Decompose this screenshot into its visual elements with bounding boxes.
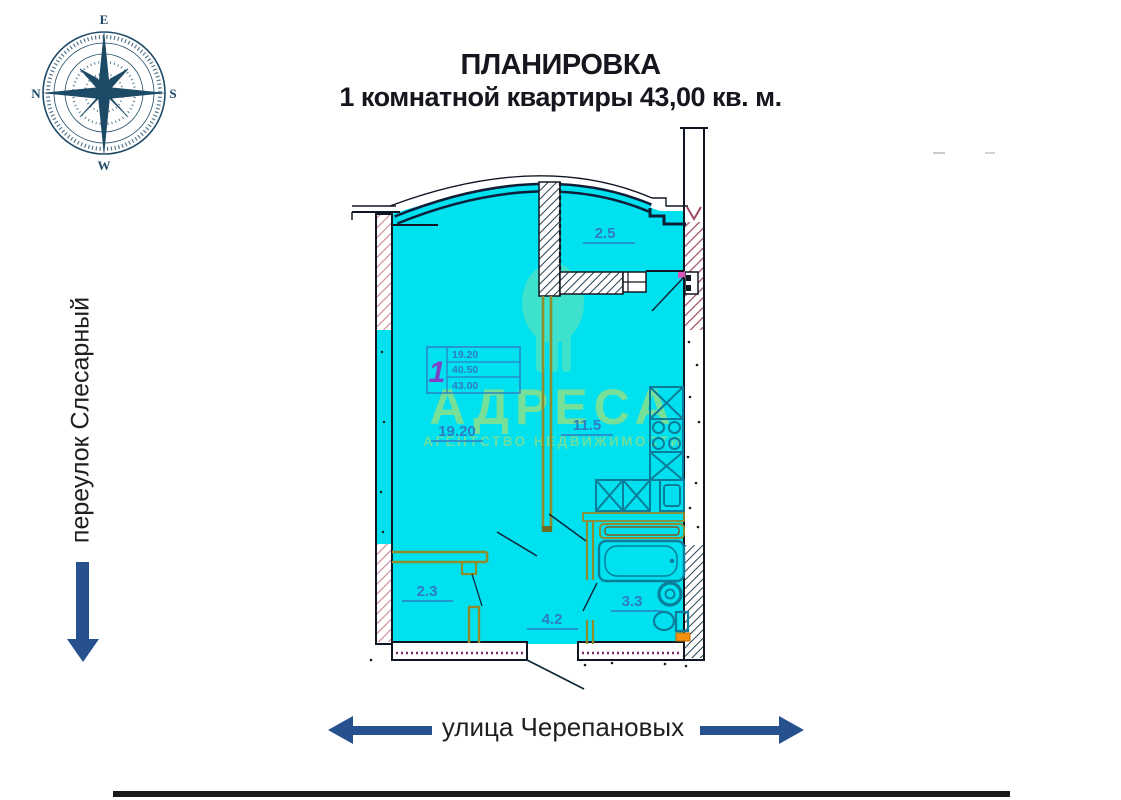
compass-letter-top: E xyxy=(100,12,109,27)
right-arrow-icon xyxy=(779,716,804,744)
plan-title-line1: ПЛАНИРОВКА xyxy=(0,50,1121,82)
down-arrow-icon xyxy=(76,562,89,640)
plan-title-line2: 1 комнатной квартиры 43,00 кв. м. xyxy=(0,82,1121,113)
bottom-divider xyxy=(113,791,1010,797)
label-living-room: 19.20 xyxy=(438,423,476,440)
label-hallway: 4.2 xyxy=(542,611,563,628)
plan-title: ПЛАНИРОВКА 1 комнатной квартиры 43,00 кв… xyxy=(0,50,1121,113)
label-wardrobe: 2.3 xyxy=(417,583,438,600)
artifact-mark xyxy=(985,152,995,154)
left-arrow-shaft xyxy=(352,726,432,735)
left-street-label: переулок Слесарный xyxy=(67,297,96,543)
label-balcony: 2.5 xyxy=(595,225,616,242)
label-kitchen: 11.5 xyxy=(573,417,601,434)
stamp-area-no-balcony: 40.50 xyxy=(452,364,478,376)
bottom-street-label: улица Черепановых xyxy=(428,712,698,743)
artifact-mark xyxy=(933,152,945,154)
floorplan-drawing: АДРЕСА АГЕНТСТВО НЕДВИЖИМОСТИ xyxy=(340,118,730,708)
stamp-living-area: 19.20 xyxy=(452,349,478,361)
left-arrow-icon xyxy=(328,716,353,744)
stamp-total-area: 43.00 xyxy=(452,380,478,392)
right-arrow-shaft xyxy=(700,726,780,735)
label-bathroom: 3.3 xyxy=(622,593,643,610)
entrance-door-swing xyxy=(527,660,584,689)
compass-letter-bottom: W xyxy=(98,158,111,173)
down-arrow-head-icon xyxy=(67,639,99,662)
stamp-rooms-count: 1 xyxy=(429,356,446,389)
floorplan-page: E S W N ПЛАНИРОВКА 1 комнатной квартиры … xyxy=(0,0,1121,800)
orange-detail xyxy=(676,633,690,641)
